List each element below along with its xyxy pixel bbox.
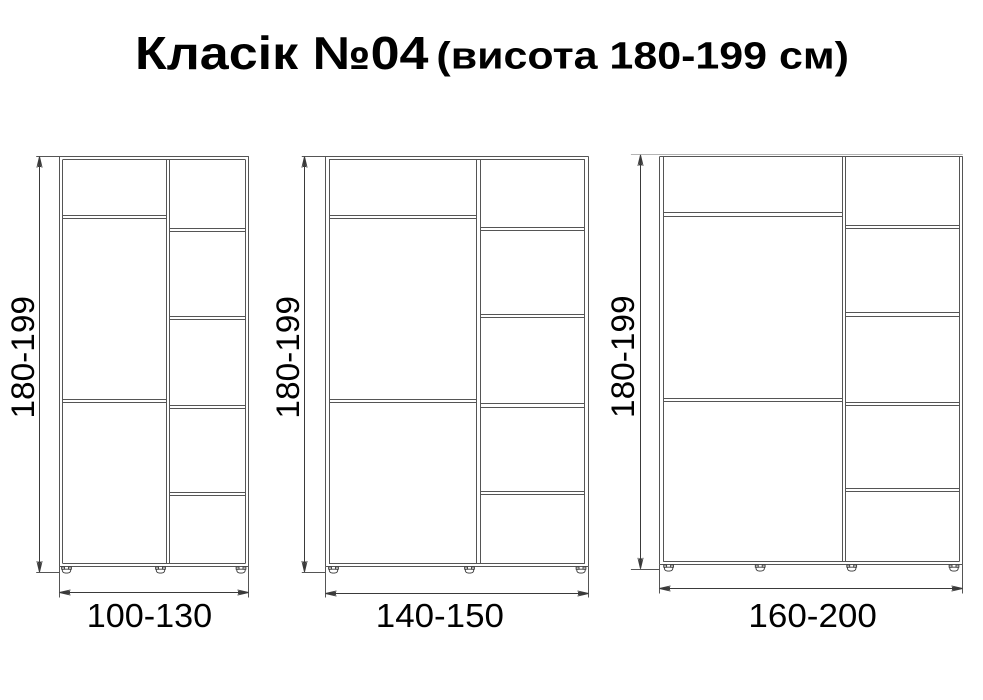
svg-text:100-130: 100-130 bbox=[87, 598, 212, 635]
svg-text:Класік №04: Класік №04 bbox=[135, 27, 429, 79]
svg-text:180-199: 180-199 bbox=[5, 296, 41, 419]
svg-text:(висота 180-199 см): (висота 180-199 см) bbox=[436, 36, 849, 78]
svg-text:180-199: 180-199 bbox=[605, 295, 641, 418]
svg-text:180-199: 180-199 bbox=[270, 296, 306, 419]
svg-text:140-150: 140-150 bbox=[376, 598, 504, 635]
svg-text:160-200: 160-200 bbox=[748, 598, 877, 635]
